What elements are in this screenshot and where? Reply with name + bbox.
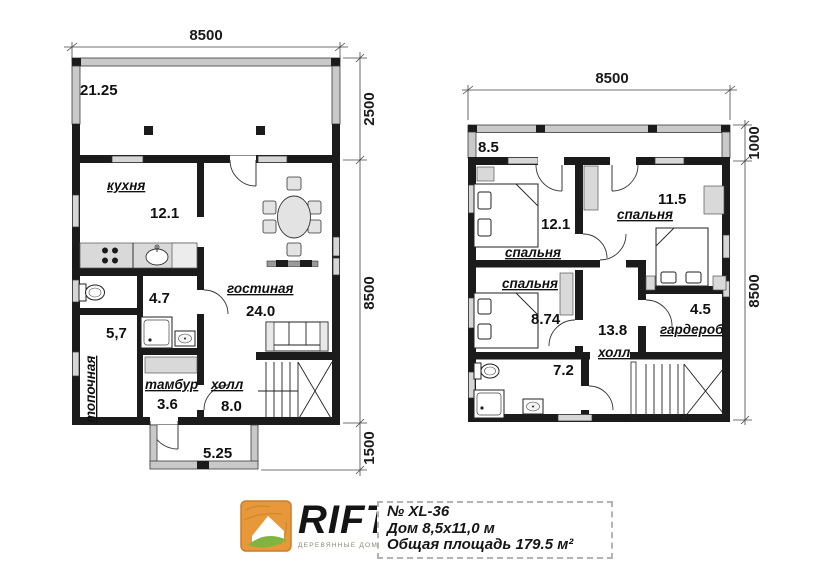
- second-floor-plan: 8500 8.5: [462, 70, 763, 425]
- wardrobe-label: гардероб: [660, 322, 724, 337]
- dim-label: 2500: [361, 92, 378, 125]
- bedroom3-label: спальня: [502, 276, 558, 291]
- dim-ff-width: 8500: [64, 27, 348, 62]
- dim-label: 1500: [361, 431, 378, 464]
- wardrobe-area: 4.5: [690, 301, 711, 318]
- floor-plans-drawing: 8500 21.25: [0, 0, 824, 490]
- balcony: 8.5: [468, 125, 730, 158]
- tambour-area: 3.6: [157, 396, 178, 413]
- bedroom1-area: 12.1: [541, 216, 570, 233]
- terrace-column: [144, 126, 153, 135]
- toilet-icon: [474, 363, 499, 379]
- dim-sf-width: 8500: [462, 70, 737, 120]
- project-number: № XL-36: [387, 504, 603, 521]
- small-sink-icon: [523, 399, 543, 414]
- porch-area-label: 5.25: [203, 445, 232, 462]
- kitchen-label: кухня: [107, 178, 145, 193]
- shower-icon: [141, 317, 172, 348]
- total-area: Общая площадь 179.5 м²: [387, 537, 603, 554]
- living-area: 24.0: [246, 303, 275, 320]
- bedroom2-label: спальня: [617, 207, 673, 222]
- tambour-closet: [145, 357, 197, 373]
- dim-label: 1000: [746, 126, 763, 159]
- boiler-label: топочная: [83, 356, 98, 423]
- balcony-area-label: 8.5: [478, 139, 499, 156]
- first-floor-plan: 8500 21.25: [64, 27, 378, 476]
- kitchen-counter: [80, 243, 197, 268]
- floor-plan-sheet: 8500 21.25: [0, 0, 824, 573]
- living-label: гостиная: [227, 281, 294, 296]
- dim-label: 8500: [189, 27, 222, 44]
- small-sink-icon: [175, 331, 195, 346]
- porch: 5.25: [150, 425, 258, 469]
- kitchen-area: 12.1: [150, 205, 179, 222]
- dim-label: 8500: [595, 70, 628, 87]
- bed: [474, 184, 538, 247]
- sf-hall-label: холл: [597, 345, 631, 360]
- bed: [474, 293, 538, 348]
- toilet-icon: [79, 284, 105, 301]
- ff-hall-area: 8.0: [221, 398, 242, 415]
- shower-icon: [474, 390, 504, 418]
- bedroom2-area: 11.5: [658, 191, 686, 208]
- terrace: 21.25: [72, 58, 340, 160]
- bed: [656, 228, 708, 286]
- boiler-area: 5,7: [106, 325, 127, 342]
- title-block: № XL-36 Дом 8,5x11,0 м Общая площадь 179…: [377, 501, 613, 559]
- terrace-area-label: 21.25: [80, 82, 118, 99]
- dim-label: 8500: [361, 276, 378, 309]
- house-size: Дом 8,5x11,0 м: [387, 521, 603, 538]
- tambour-label: тамбур: [145, 377, 198, 392]
- dim-label: 8500: [746, 274, 763, 307]
- terrace-column: [256, 126, 265, 135]
- dim-sf-heights: 1000 8500: [733, 120, 763, 425]
- bedroom3-area: 8.74: [531, 311, 561, 328]
- logo-house-icon: [240, 500, 292, 552]
- ff-hall-label: холл: [210, 377, 244, 392]
- bedroom1-label: спальня: [505, 245, 561, 260]
- sofa: [266, 322, 328, 351]
- sf-hall-area: 13.8: [598, 322, 627, 339]
- bathroom-area: 4.7: [149, 290, 170, 307]
- sf-bathroom-area: 7.2: [553, 362, 574, 379]
